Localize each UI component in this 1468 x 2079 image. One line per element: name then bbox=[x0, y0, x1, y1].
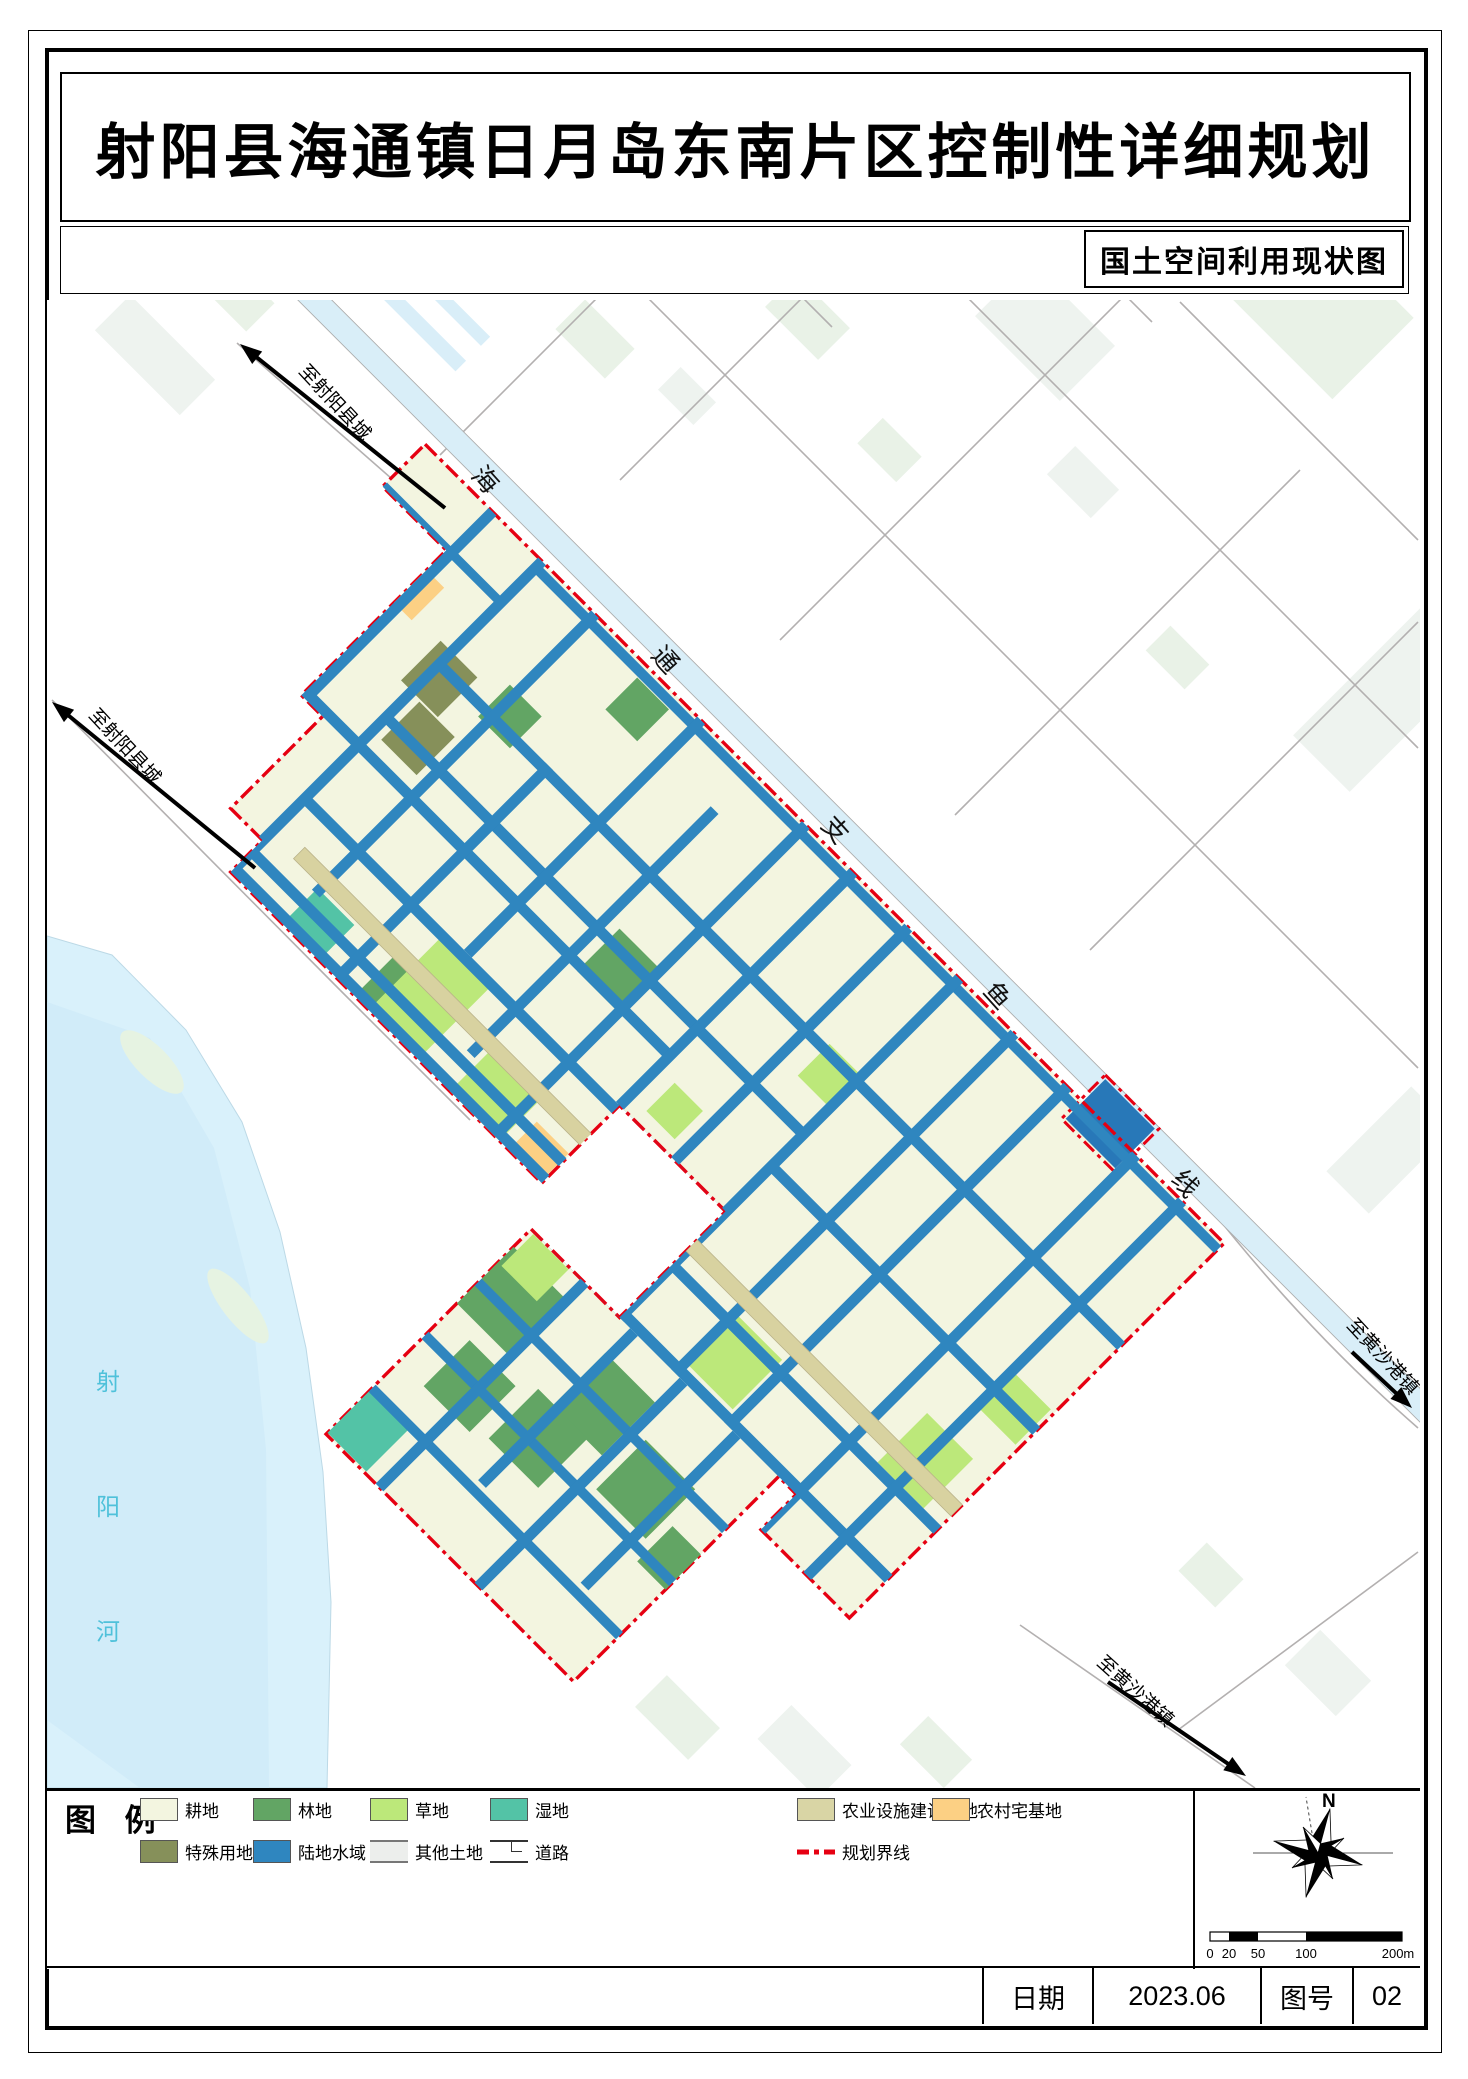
legend-item-label: 湿地 bbox=[535, 1797, 569, 1822]
legend-item: 湿地 bbox=[490, 1797, 569, 1822]
compass-box: N02050100200m bbox=[1193, 1791, 1422, 1969]
legend-swatch bbox=[370, 1798, 408, 1821]
legend-item: 规划界线 bbox=[797, 1839, 910, 1864]
legend-item: 草地 bbox=[370, 1797, 449, 1822]
river-name-char: 阳 bbox=[96, 1494, 120, 1521]
legend-swatch bbox=[932, 1798, 970, 1821]
legend-item-label: 农村宅基地 bbox=[977, 1797, 1062, 1822]
river-name-char: 河 bbox=[96, 1619, 120, 1646]
footer-bar: 日期 2023.06 图号 02 bbox=[47, 1966, 1420, 2024]
legend-swatch bbox=[490, 1840, 528, 1863]
legend-item: 林地 bbox=[253, 1797, 332, 1822]
compass-rose-icon: N02050100200m bbox=[1195, 1791, 1420, 1967]
north-label: N bbox=[1322, 1791, 1336, 1812]
legend-swatch bbox=[140, 1798, 178, 1821]
legend: 图 例 耕地林地草地湿地农业设施建设用地农村宅基地特殊用地陆地水域其他土地道路规… bbox=[47, 1788, 1420, 1969]
scale-tick-label: 200m bbox=[1382, 1946, 1415, 1961]
legend-swatch bbox=[253, 1798, 291, 1821]
legend-swatch bbox=[140, 1840, 178, 1863]
legend-item: 特殊用地 bbox=[140, 1839, 253, 1864]
date-label: 日期 bbox=[982, 1968, 1092, 2024]
subtitle-band: 国土空间利用现状图 bbox=[60, 226, 1409, 294]
legend-swatch-boundary bbox=[797, 1847, 835, 1857]
title-box: 射阳县海通镇日月岛东南片区控制性详细规划 bbox=[60, 72, 1411, 222]
scale-tick-label: 50 bbox=[1251, 1946, 1265, 1961]
legend-item-label: 特殊用地 bbox=[185, 1839, 253, 1864]
legend-swatch bbox=[253, 1840, 291, 1863]
legend-item-label: 耕地 bbox=[185, 1797, 219, 1822]
scale-bar-seg bbox=[1306, 1932, 1402, 1941]
legend-item-label: 陆地水域 bbox=[298, 1839, 366, 1864]
scale-tick-label: 100 bbox=[1295, 1946, 1317, 1961]
legend-item: 其他土地 bbox=[370, 1839, 483, 1864]
legend-swatch bbox=[490, 1798, 528, 1821]
sheet-no-label: 图号 bbox=[1260, 1968, 1352, 2024]
page-title: 射阳县海通镇日月岛东南片区控制性详细规划 bbox=[96, 104, 1376, 191]
plan-sheet: 射阳县海通镇日月岛东南片区控制性详细规划 国土空间利用现状图 海通支鱼线射阳河至… bbox=[0, 0, 1468, 2079]
legend-item-label: 林地 bbox=[298, 1797, 332, 1822]
map-area: 海通支鱼线射阳河至射阳县城至射阳县城至黄沙港镇至黄沙港镇 bbox=[47, 300, 1420, 1788]
legend-item: 耕地 bbox=[140, 1797, 219, 1822]
legend-item-label: 规划界线 bbox=[842, 1839, 910, 1864]
footer-spacer bbox=[47, 1968, 982, 2024]
legend-item-label: 草地 bbox=[415, 1797, 449, 1822]
legend-item: 道路 bbox=[490, 1839, 569, 1864]
scale-tick-label: 0 bbox=[1206, 1946, 1213, 1961]
sheet-no-value: 02 bbox=[1352, 1968, 1420, 2024]
legend-item: 农村宅基地 bbox=[932, 1797, 1062, 1822]
map-canvas: 海通支鱼线射阳河至射阳县城至射阳县城至黄沙港镇至黄沙港镇 bbox=[47, 300, 1420, 1788]
legend-item-label: 其他土地 bbox=[415, 1839, 483, 1864]
legend-item-label: 道路 bbox=[535, 1839, 569, 1864]
scale-bar-seg bbox=[1229, 1932, 1258, 1941]
scale-tick-label: 20 bbox=[1222, 1946, 1236, 1961]
map-subtitle: 国土空间利用现状图 bbox=[1084, 230, 1404, 288]
date-value: 2023.06 bbox=[1092, 1968, 1260, 2024]
legend-item: 陆地水域 bbox=[253, 1839, 366, 1864]
legend-swatch bbox=[797, 1798, 835, 1821]
legend-swatch bbox=[370, 1840, 408, 1863]
river-name-char: 射 bbox=[96, 1369, 120, 1396]
